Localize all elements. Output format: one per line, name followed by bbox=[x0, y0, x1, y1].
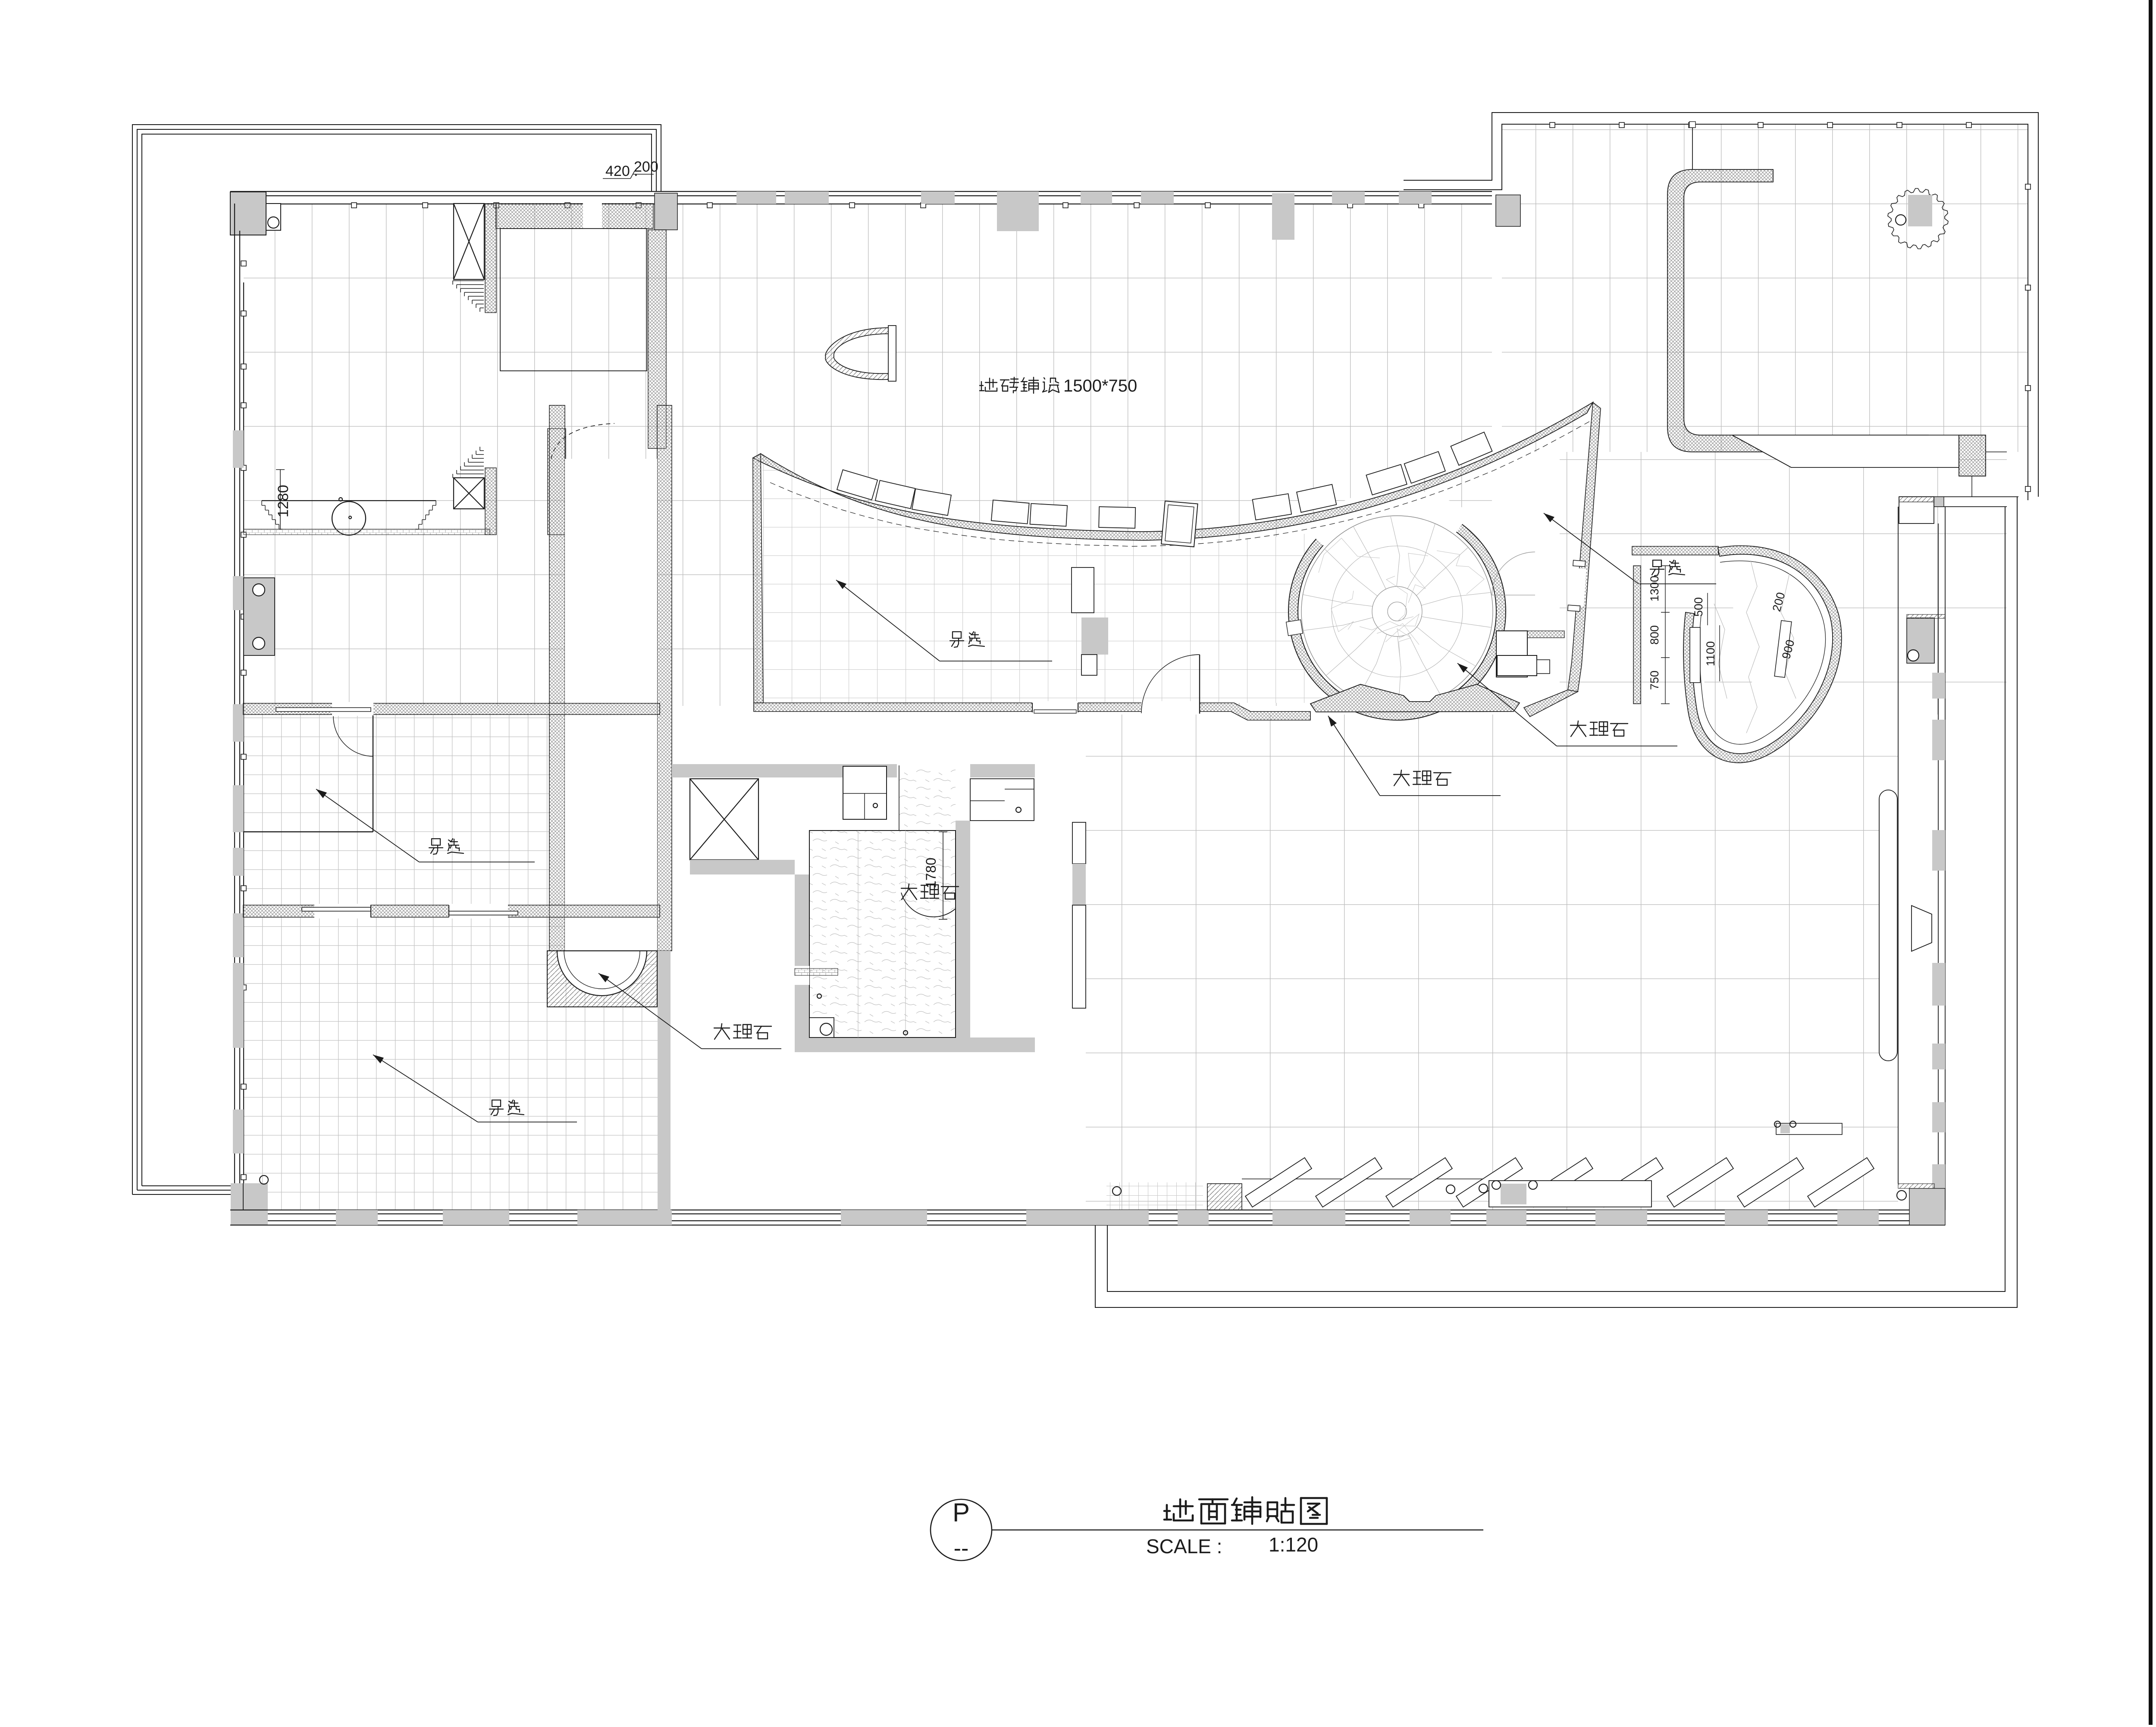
svg-text:P: P bbox=[953, 1498, 970, 1527]
svg-text:1:120: 1:120 bbox=[1269, 1533, 1318, 1556]
svg-text:--: -- bbox=[954, 1536, 969, 1561]
svg-text:200: 200 bbox=[634, 159, 658, 175]
svg-text:420 .: 420 . bbox=[605, 163, 638, 179]
svg-text:1500*750: 1500*750 bbox=[1063, 376, 1137, 395]
svg-text:1280: 1280 bbox=[275, 485, 291, 517]
svg-text:800: 800 bbox=[1648, 625, 1661, 645]
svg-text:750: 750 bbox=[1648, 671, 1661, 690]
svg-text:1780: 1780 bbox=[923, 858, 939, 888]
svg-text:1100: 1100 bbox=[1704, 641, 1717, 666]
svg-text:1300: 1300 bbox=[1648, 576, 1661, 602]
svg-text:SCALE :: SCALE : bbox=[1146, 1535, 1222, 1558]
svg-text:500: 500 bbox=[1692, 597, 1705, 617]
